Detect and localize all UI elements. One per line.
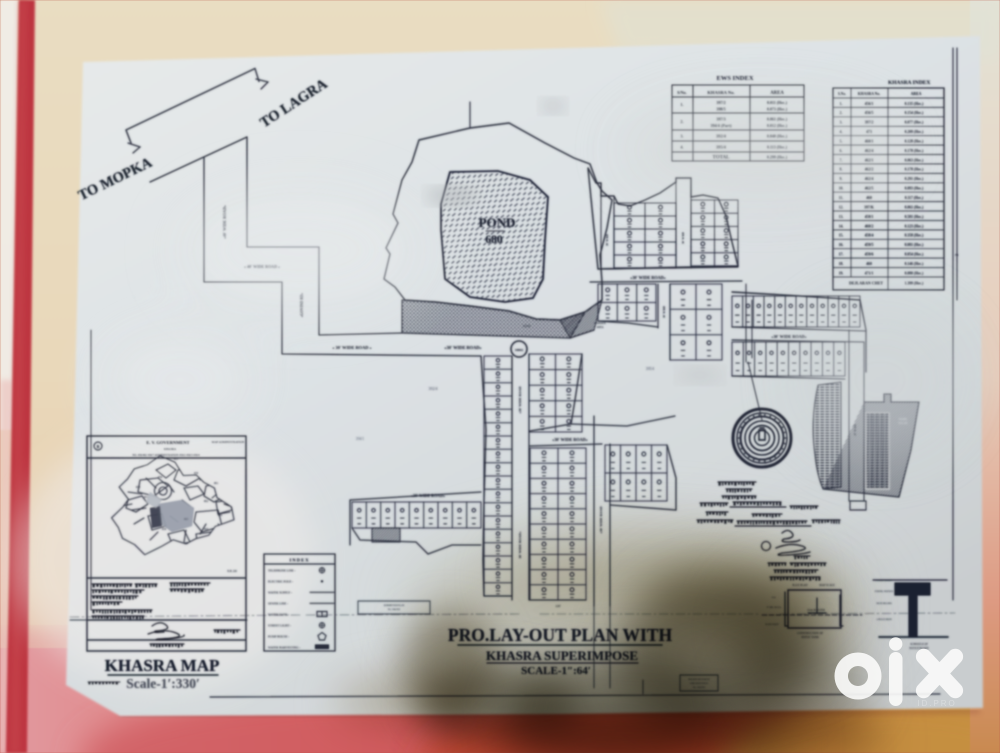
svg-text:ID.PRO: ID.PRO <box>917 699 957 708</box>
